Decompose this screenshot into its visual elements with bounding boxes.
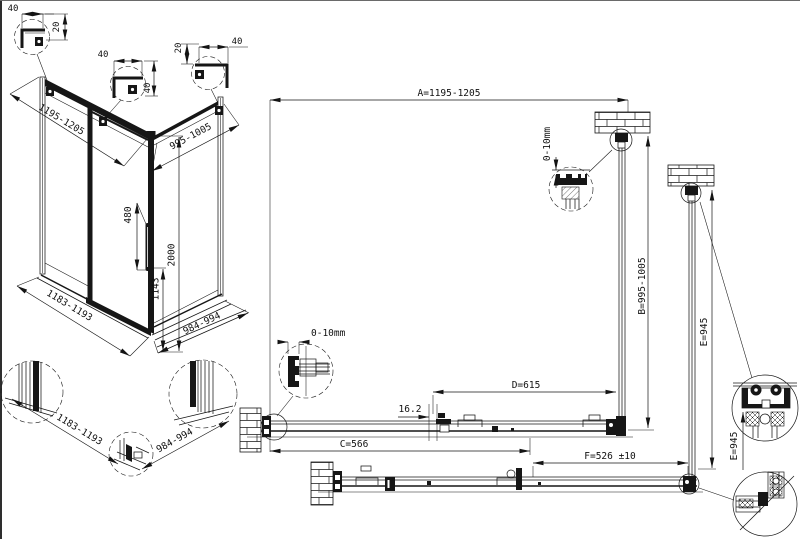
wall-bracket [615, 133, 628, 142]
glass-clip-icon [131, 88, 134, 91]
dim-40-label: 40 [8, 4, 19, 14]
leader-line [277, 396, 293, 416]
wall-bracket [685, 186, 698, 195]
dim-e-label: E=945 [699, 318, 710, 347]
dim-gap-label: 16.2 [399, 404, 422, 415]
corner-connector-2 [683, 476, 696, 492]
technical-drawing-canvas: 40 20 40 40 20 40 [0, 0, 800, 539]
detail-circle [169, 360, 237, 428]
corner-junction-detail [733, 472, 797, 536]
dim-20-label: 20 [52, 22, 62, 33]
base-detail-left [1, 361, 63, 423]
dim-handle-length-label: 480 [123, 206, 134, 223]
glass-clip-icon [198, 73, 201, 76]
wall-gap-front-label: 0-10mm [311, 328, 346, 339]
wall-gap-side-label: 0-10mm [542, 127, 553, 162]
wall-profile-detail-front: 0-10mm [277, 328, 346, 416]
drawing-svg: 40 20 40 40 20 40 [0, 0, 800, 539]
plan-view-main: A=1195-1205 B=995-1005 [240, 88, 654, 455]
dim-c-label: C=566 [340, 439, 369, 450]
wall-profile-detail-top: 0-10mm [542, 127, 593, 211]
detail-circle [111, 67, 146, 102]
base-detail-corner [109, 432, 153, 476]
dim-40-label: 40 [98, 50, 109, 60]
base-detail-right [169, 360, 237, 428]
glass-clip-icon [37, 40, 40, 43]
wall-hatch-side [595, 112, 650, 133]
dim-handle-height-label: 1143 [151, 278, 162, 301]
isometric-view: 1195-1205 995-1005 480 2000 1143 1183-11… [10, 77, 249, 356]
dim-a-label: A=1195-1205 [418, 88, 481, 99]
detail-circle [15, 20, 50, 55]
detail-circle [1, 361, 63, 423]
plan-view-secondary: E=945 F=526 [311, 165, 798, 536]
corner-detail-middle: 40 40 [98, 50, 158, 117]
front-track-plan [240, 408, 633, 452]
roller-rail-detail: E=945 [729, 375, 798, 470]
dim-height-label: 2000 [167, 243, 178, 266]
leader-line [700, 202, 752, 378]
corner-detail-right: 20 40 [174, 37, 248, 107]
dim-40-label: 40 [232, 37, 243, 47]
dim-20-label: 20 [174, 43, 184, 54]
dim-e-detail-label: E=945 [729, 432, 740, 461]
corner-detail-left: 40 20 [8, 4, 68, 88]
leader-line [589, 150, 612, 172]
dim-40-label: 40 [143, 83, 153, 94]
wall-hatch-front [240, 408, 261, 452]
dim-f-label: F=526 ±10 [584, 451, 636, 462]
front-track-plan-2 [311, 462, 734, 505]
dim-d-label: D=615 [512, 380, 541, 391]
door-stile [88, 106, 93, 304]
wall-hatch-front-2 [311, 462, 333, 505]
dim-b-label: B=995-1005 [637, 257, 648, 314]
leader-line [699, 488, 734, 500]
